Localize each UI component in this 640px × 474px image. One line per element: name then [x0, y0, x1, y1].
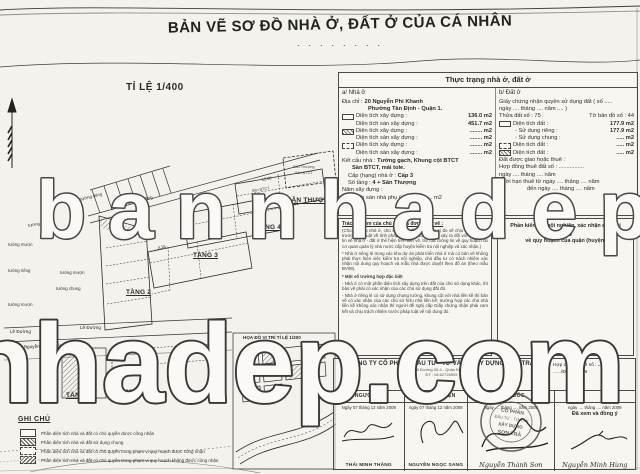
responsibility-p3a: - Nhà ở có một phần diện tích xây dựng t…: [342, 281, 488, 291]
date-owner: ngày .... tháng .... năm 2009: [555, 405, 635, 410]
legend-item: Phần diện tích nhà và đất sử dụng chung: [20, 438, 123, 446]
role-owner: [555, 391, 635, 402]
street-label-right: Lề Đường: [80, 325, 101, 330]
legend-symbol-dash: [20, 447, 36, 455]
signature-cell-owner: ngày .... tháng .... năm 2009 Đã xem và …: [555, 403, 635, 471]
land-area-row: - Sử dụng chung :..... m2: [513, 135, 634, 142]
land-area-row: Diện tích đất :177.9 m2: [499, 121, 634, 128]
wall-label-3: tường mượn: [8, 242, 33, 247]
street-label-left: Lề Đường: [10, 329, 31, 334]
responsibility-p1: (Chủ sở hữu nhà ở, chủ sử dụng đất ở và …: [342, 228, 488, 249]
date-drafter: Ngày 07 tháng 12 năm 2009: [334, 405, 404, 410]
area-row: Diện tích xây dựng :136.0 m2: [342, 113, 492, 120]
floor-plan-t4: Sàn BTCT: [235, 169, 326, 214]
inspection-line1: Phần kiểm tra nội nghiệp, xác nhận các n…: [504, 223, 627, 238]
name-checker: NGUYỄN NGỌC SANG: [405, 463, 468, 468]
north-arrow: [8, 99, 16, 168]
signature-cell-drafter: Ngày 07 tháng 12 năm 2009 THÁI MINH THẮN…: [334, 403, 405, 471]
title-underline-dots: · · · · · · · ·: [250, 40, 430, 50]
floor-plan-t2: [148, 232, 252, 288]
responsibility-p2: * Nhà ở riêng lẻ trong các khu dự án phá…: [342, 251, 488, 272]
aux-row: Diện tích sàn nhà phụ (nếu có) ....... m…: [342, 195, 492, 202]
certificate-line1: Giấy chứng nhận quyền sử dụng đất ( số .…: [499, 99, 634, 106]
floor-plan-roof: Sân Thượng Sàn BTCT: [283, 151, 336, 188]
roof-line1: Sân Thượng: [293, 165, 314, 169]
signature-owner: [563, 425, 633, 455]
responsibility-title: Trách nhiệm của chủ nhà và đơn vị đo vẽ …: [342, 221, 488, 227]
scanned-document-page: hẻm xi măng Sàn BTCT Sân Thượng Sàn BTCT: [0, 0, 640, 474]
name-director: Nguyễn Thành Sơn: [468, 461, 553, 469]
company-name-cell: CÔNG TY CỔ PHẦN - ĐẦU TƯ - TƯ VẤN - XÂY …: [334, 359, 550, 390]
floor-plan-t3: [183, 195, 288, 248]
wall-label-6: tường chung: [56, 286, 81, 291]
area-row: Diện tích sàn xây dựng :........ m2: [342, 150, 492, 157]
legend-item-label: Phần diện tích nhà và đất có chủ quyền đ…: [41, 431, 154, 436]
area-row: Diện tích xây dựng :........ m2: [342, 128, 492, 135]
inspection-line2: về quy hoạch của quận (huyện): [504, 238, 627, 246]
wall-label-7: tường mượn: [8, 302, 33, 307]
scale-label: TỈ LỆ 1/400: [126, 82, 184, 93]
svg-text:10.00: 10.00: [204, 193, 216, 200]
roof-line2: Sàn BTCT: [295, 171, 313, 175]
contract-cell: Hợp đồng đo vẽ số : ........66 ....../ĐV…: [550, 359, 635, 390]
name-drafter: THÁI MINH THẮNG: [334, 463, 404, 468]
form-header: Thực trạng nhà ở, đất ở: [339, 73, 637, 88]
floors-row: Số tầng : 4 + Sân Thượng: [348, 180, 492, 187]
approved-note: Đã xem và đồng ý: [555, 411, 635, 417]
svg-text:4.10: 4.10: [157, 243, 166, 250]
lease-line4: đến ngày .... tháng .... năm: [527, 186, 634, 193]
house-section: a/ Nhà ở Địa chỉ : 20 Nguyễn Phi Khanh P…: [339, 88, 496, 215]
responsibility-p3-title: * Một số trường hợp đặc biệt: [342, 274, 488, 279]
street-lines: [4, 318, 232, 360]
svg-text:12.00: 12.00: [261, 175, 272, 182]
location-map-label: HỌA ĐỒ VỊ TRÍ TỈ LỆ 1/200: [243, 335, 301, 340]
responsibility-p3b: - Nhà ở riêng lẻ có sử dụng chung tường,…: [342, 293, 488, 314]
role-drafter: NGƯỜI VẼ: [334, 391, 405, 402]
legend-header: GHI CHÚ: [18, 416, 50, 423]
land-area-row: Diện tích đất :..... m2: [499, 150, 634, 157]
legend-item-label: Phần diện tích nhà và đất sử dụng chung: [41, 440, 123, 445]
role-checker: KT THỰC HIỆN: [405, 391, 469, 402]
inspection-box: Phần kiểm tra nội nghiệp, xác nhận các n…: [497, 218, 634, 356]
area-row: Diện tích xây dựng :........ m2: [342, 142, 492, 149]
address-line2: Phường Tân Định - Quận 1.: [368, 106, 492, 113]
legend-symbol-open: [20, 429, 36, 437]
location-map: [233, 333, 336, 469]
legend-item: Phần diện tích nhà và đất có chủ quyền đ…: [20, 429, 154, 437]
company-stamp: CỔ PHẦN ĐẦU TƯ - TƯ VẤN XÂY DỰNG SƠN TRÀ: [474, 386, 548, 459]
house-section-label: a/ Nhà ở: [342, 90, 492, 98]
land-section: b/ Đất ở Giấy chứng nhận quyền sử dụng đ…: [496, 88, 637, 215]
area-row: Diện tích sàn xây dựng :........ m2: [342, 135, 492, 142]
address-row: Địa chỉ : 20 Nguyễn Phi Khanh: [342, 99, 492, 106]
floor-label-t2: TẦNG 2: [126, 289, 151, 296]
floor-plan-t1-upper: [99, 216, 170, 330]
land-section-label: b/ Đất ở: [499, 90, 634, 98]
legend-item: Phần diện tích nhà và đất có chủ quyền t…: [20, 456, 218, 464]
slab-label-t4: Sàn BTCT: [252, 186, 271, 193]
company-address2: ĐT : 08.62726505: [334, 372, 549, 377]
dimension-labels: 10.00 12.00 4.10 3.96: [157, 175, 299, 250]
wall-label-5: tường mượn: [60, 270, 85, 275]
year-row: Năm xây dựng :: [342, 187, 492, 194]
lease-line2: ngày .... tháng .... năm: [499, 172, 634, 179]
date-checker: ngày 07 tháng 12 năm 2009: [405, 405, 468, 410]
wall-label-4: tường riêng: [8, 268, 30, 273]
floor-label-t4: TẦNG 4: [256, 224, 281, 231]
floor-label-roof: SÂN THƯỢNG: [287, 197, 334, 204]
svg-text:SƠN TRÀ: SƠN TRÀ: [497, 428, 522, 438]
structure-row: Kết cấu nhà : Tường gạch, Khung cột BTCT: [342, 158, 492, 165]
structure-row2: Sàn BTCT, mái tole.: [352, 165, 492, 172]
legend-item-label: Phần diện tích nhà và đất có chủ quyền t…: [41, 449, 205, 454]
grade-row: Cấp (hạng) nhà ở : Cấp 3: [348, 173, 492, 180]
signature-cell-checker: ngày 07 tháng 12 năm 2009 NGUYỄN NGỌC SA…: [405, 403, 469, 471]
legend-item-label: Phần diện tích nhà và đất có chủ quyền t…: [41, 458, 218, 463]
granted-row: Đất được giao hoặc thuê :: [499, 157, 634, 164]
legend-symbol-hatch: [20, 438, 36, 446]
legend-symbol-diagonal: [20, 456, 36, 464]
land-area-row: Diện tích đất :..... m2: [499, 142, 634, 149]
status-form: Thực trạng nhà ở, đất ở a/ Nhà ở Địa chỉ…: [338, 72, 638, 216]
parcel-row: Thửa đất số : 75 Tờ bản đồ số : 44: [499, 113, 634, 120]
lease-line3: Thời hạn thuê từ ngày .... tháng .... nă…: [499, 179, 634, 186]
floor-label-t3: TẦNG 3: [193, 252, 218, 259]
responsibility-box: Trách nhiệm của chủ nhà và đơn vị đo vẽ …: [338, 218, 492, 356]
signature-checker: [409, 415, 467, 449]
alley-label: hẻm xi măng: [127, 194, 154, 206]
lease-line1: Hợp đồng thuê đất số : ................: [499, 164, 634, 171]
legend-item: Phần diện tích nhà và đất có chủ quyền t…: [20, 447, 205, 455]
floor-label-t1: TẦNG 1: [66, 392, 91, 399]
signature-drafter: [338, 415, 400, 447]
name-owner: Nguyễn Minh Hùng: [555, 461, 635, 469]
area-row: Diện tích sàn xây dựng :451.7 m2: [342, 121, 492, 128]
